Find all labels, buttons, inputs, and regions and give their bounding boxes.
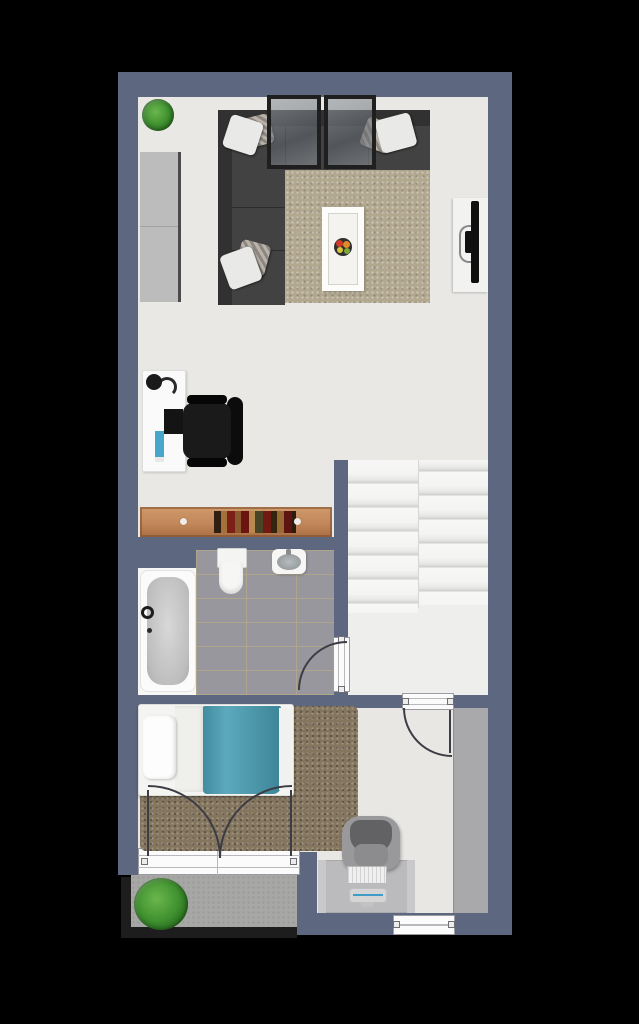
apartment-floorplan: [0, 0, 639, 1024]
bedroom-door-arc: [404, 708, 452, 756]
floorplan-canvas: [0, 0, 639, 1024]
bathroom-door-arc: [299, 642, 347, 690]
french-door-arc-left: [148, 786, 220, 858]
french-door-arc-right: [220, 786, 292, 858]
door-swing-arcs: [0, 0, 639, 1024]
